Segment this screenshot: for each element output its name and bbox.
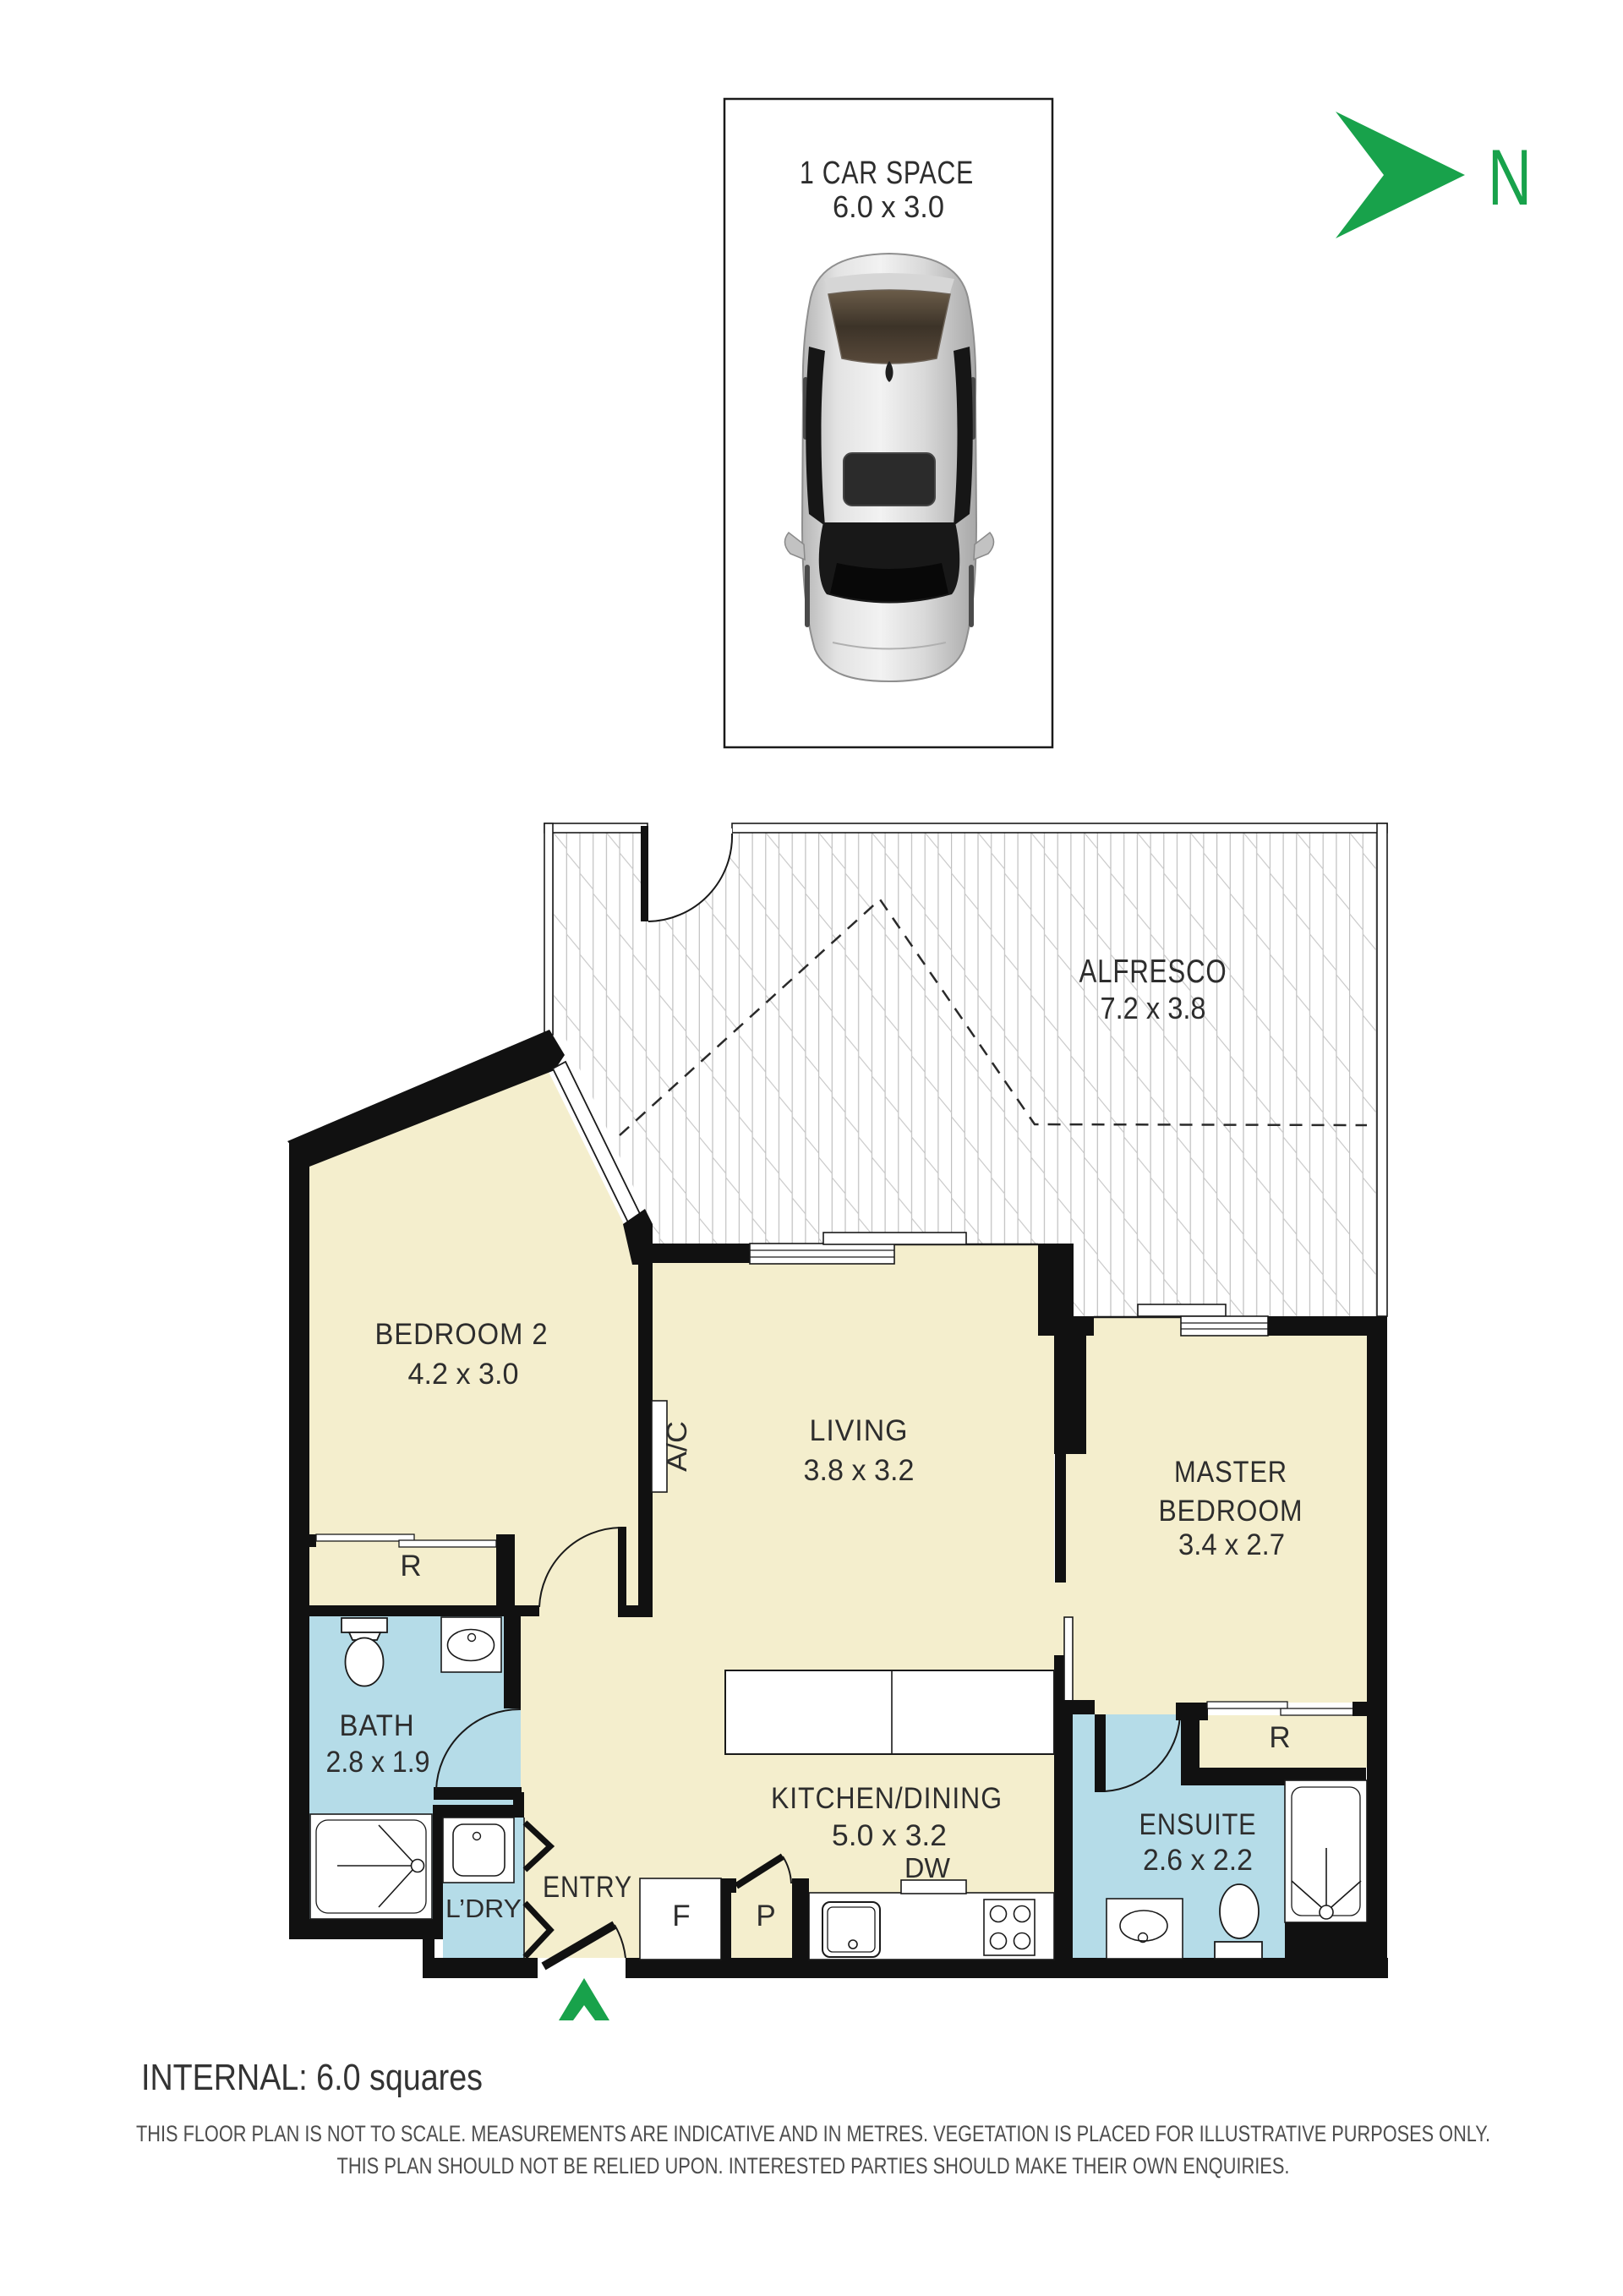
svg-text:A/C: A/C xyxy=(661,1421,692,1472)
svg-text:P: P xyxy=(756,1900,775,1932)
svg-text:MASTER: MASTER xyxy=(1174,1456,1287,1489)
svg-text:R: R xyxy=(400,1550,421,1583)
svg-text:BEDROOM: BEDROOM xyxy=(1159,1495,1303,1528)
svg-text:2.8 x 1.9: 2.8 x 1.9 xyxy=(326,1746,430,1779)
svg-text:4.2 x 3.0: 4.2 x 3.0 xyxy=(408,1358,519,1391)
svg-text:6.0 x 3.0: 6.0 x 3.0 xyxy=(833,189,944,224)
svg-text:BEDROOM 2: BEDROOM 2 xyxy=(375,1318,549,1351)
svg-text:DW: DW xyxy=(904,1852,951,1883)
svg-text:ALFRESCO: ALFRESCO xyxy=(1079,954,1227,990)
svg-text:5.0 x 3.2: 5.0 x 3.2 xyxy=(832,1819,947,1852)
svg-text:F: F xyxy=(672,1900,690,1932)
svg-text:L’DRY: L’DRY xyxy=(445,1894,522,1923)
svg-text:ENTRY: ENTRY xyxy=(543,1871,632,1904)
svg-text:ENSUITE: ENSUITE xyxy=(1139,1808,1257,1841)
svg-text:THIS PLAN SHOULD NOT BE RELIED: THIS PLAN SHOULD NOT BE RELIED UPON. INT… xyxy=(337,2153,1290,2178)
svg-text:3.4 x 2.7: 3.4 x 2.7 xyxy=(1178,1528,1285,1561)
svg-text:THIS FLOOR PLAN IS NOT TO SCAL: THIS FLOOR PLAN IS NOT TO SCALE. MEASURE… xyxy=(136,2121,1490,2146)
svg-text:BATH: BATH xyxy=(340,1709,415,1742)
svg-text:1 CAR SPACE: 1 CAR SPACE xyxy=(800,156,974,191)
svg-text:KITCHEN/DINING: KITCHEN/DINING xyxy=(771,1782,1003,1815)
svg-text:INTERNAL: 6.0 squares: INTERNAL: 6.0 squares xyxy=(141,2057,483,2098)
svg-text:N: N xyxy=(1488,133,1532,221)
svg-text:7.2 x 3.8: 7.2 x 3.8 xyxy=(1101,991,1206,1025)
svg-text:R: R xyxy=(1269,1721,1290,1754)
svg-text:2.6 x 2.2: 2.6 x 2.2 xyxy=(1143,1844,1253,1877)
svg-text:LIVING: LIVING xyxy=(810,1414,909,1447)
svg-text:3.8 x 3.2: 3.8 x 3.2 xyxy=(804,1454,915,1487)
